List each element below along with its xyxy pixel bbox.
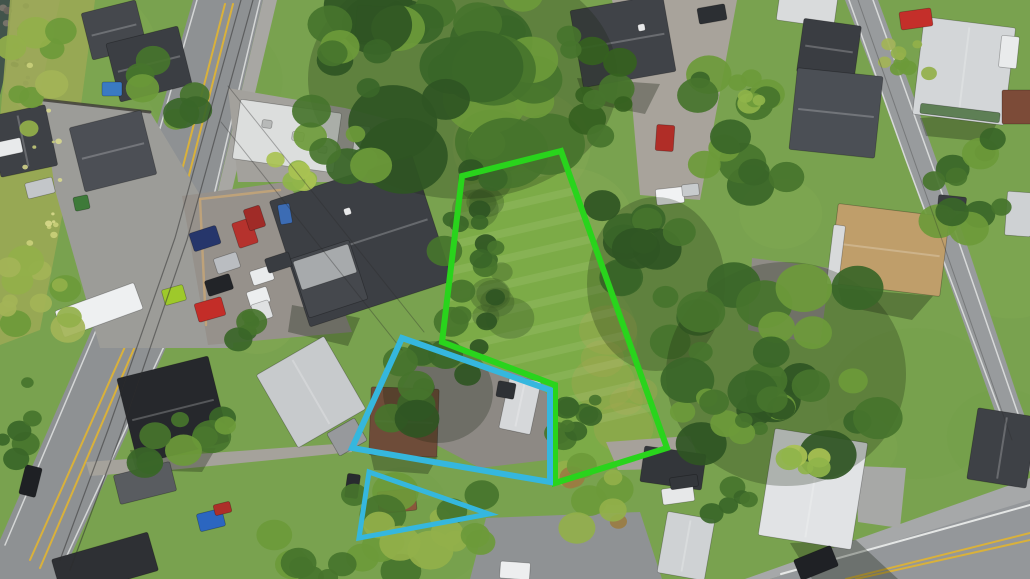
driveway-bottom-right (856, 466, 906, 528)
pool-blue (102, 82, 122, 96)
car-silver-mid (681, 183, 699, 197)
car-red-mid-right (655, 124, 675, 151)
aerial-photo (0, 0, 1030, 579)
aerial-scene-svg (0, 0, 1030, 579)
car-red-tr (899, 8, 933, 30)
dumpster-green (73, 195, 91, 212)
roof-vent-1 (261, 119, 272, 128)
chimney-2 (637, 23, 645, 31)
car-white-bottom (499, 561, 530, 579)
house-br-dark-right (967, 408, 1030, 488)
car-dark-cyan-lot (496, 381, 517, 400)
structure-right-edge-white (1004, 191, 1030, 237)
structure-right-edge-brown (1002, 90, 1030, 124)
van-white-tr (998, 35, 1019, 69)
house-tr-big-gray (789, 68, 883, 159)
